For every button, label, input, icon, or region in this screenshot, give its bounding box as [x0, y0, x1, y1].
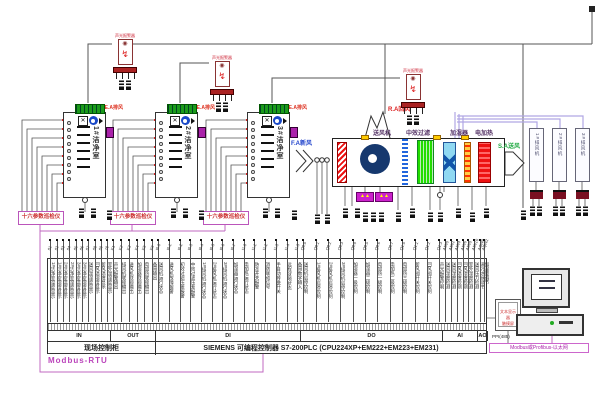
rack-bars [77, 126, 90, 174]
sensor-box [198, 127, 206, 138]
damper-grid-section [402, 139, 408, 185]
lightning-icon: ↯ [407, 83, 420, 95]
terminal-stack [315, 214, 320, 224]
alarm-body: ◉↯ [406, 74, 421, 100]
pc-monitor-stand [536, 308, 558, 313]
wire-signal-label: 手自动转换开关 [277, 262, 282, 320]
alarm-pins [213, 95, 232, 101]
modbus-rtu-label: Modbus-RTU [48, 356, 108, 365]
terminal-stack [410, 208, 415, 218]
supply-fan-label: 送风机 [373, 128, 391, 137]
wire-signal-label: 2#洁净室温度显示 [64, 262, 69, 320]
wire-signal-label: 声光报警输出 [114, 262, 119, 320]
lightning-icon: ↯ [119, 48, 132, 60]
terminal-stack [470, 212, 475, 222]
terminal-stack [521, 210, 526, 220]
rack-bars [169, 126, 182, 174]
lightning-icon: ↯ [216, 70, 229, 82]
pc-screen [531, 274, 562, 300]
terminal-stack [379, 212, 384, 222]
wire-signal-label: 消防联动信号 [266, 262, 271, 320]
heater-label: 电加热 [475, 128, 493, 137]
io-section-AI: AI [443, 331, 478, 341]
humidifier-section [464, 142, 471, 183]
terminal-stack [199, 210, 204, 220]
duct-fan-unit: 1#排风机 [529, 128, 544, 182]
wire-signal-label: 送风机联锁输出 [130, 262, 135, 320]
bell-icon: ◉ [216, 62, 229, 70]
param-monitor: 十六参数巡检仪 [110, 211, 156, 225]
param-monitor: 十六参数巡检仪 [18, 211, 64, 225]
wire-signal-label: 加湿量调节 [485, 262, 490, 320]
wire-signal-label: 2#洁净室湿度显示 [70, 262, 75, 320]
terminal-stack [343, 208, 348, 218]
wire-signal-label: 防冻开关报警 [255, 262, 260, 320]
wire-signal-label: 新风阀开关控制 [416, 262, 421, 320]
terminal-stack [530, 206, 535, 216]
duct-fan-label: 2#排风机 [557, 133, 563, 157]
rack-bars [261, 126, 274, 174]
bell-icon: ◉ [119, 40, 132, 48]
hmi-line2: 触摸屏 [502, 321, 514, 326]
cleanroom-label: 1#洁净室 [90, 126, 100, 160]
io-section-IN: IN [48, 331, 111, 341]
terminal-stack [107, 210, 112, 220]
terminal-stack [275, 208, 280, 218]
wire-signal-label: 回风阀开关控制 [428, 262, 433, 320]
alarm-unit: 声光报警器◉↯ [112, 33, 138, 90]
wire-signal-label: 送风机运行状态 [159, 262, 164, 320]
damper-actuator-icon [361, 135, 369, 140]
terminal-stack [583, 206, 588, 216]
floppy-slot [559, 321, 573, 324]
wire-signal-label: 加湿器联锁输出 [138, 262, 143, 320]
terminal-stack [407, 115, 412, 125]
medium-filter-label: 中效过滤 [406, 128, 430, 137]
fan-connector-cap [576, 190, 589, 199]
terminal-stack [126, 80, 131, 90]
terminal-stack [456, 208, 461, 218]
wire-signal-label: 新风温度显示 [102, 262, 107, 320]
io-section-AO: AO [478, 331, 488, 341]
alarm-pins [116, 73, 135, 79]
terminal-stack [553, 206, 558, 216]
pc-case [516, 314, 584, 336]
io-section-DI: DI [156, 331, 301, 341]
wire-signal-label: 初效过滤压差报警 [181, 262, 186, 320]
cleanroom-unit: E.A排风✕2#洁净室 [155, 112, 198, 198]
terminal-stack [79, 208, 84, 218]
hmi-line1: 文本显示器 [500, 309, 516, 320]
fresh-air-label: F.A新风 [291, 138, 312, 147]
wire-signal-label: 送风机故障报警 [170, 262, 175, 320]
field-cabinet-label: 现场控制柜 [48, 341, 156, 355]
terminal-stack [119, 80, 124, 90]
fan-connector-cap [530, 190, 543, 199]
pc-monitor [522, 268, 570, 308]
terminal-stack [216, 102, 221, 112]
wire-signal-label: 电加热联锁输出 [145, 262, 150, 320]
wire-signal-label: 送风温湿度显示 [89, 262, 94, 320]
terminal-stack [484, 208, 489, 218]
terminal-stack [263, 208, 268, 218]
humidifier-pump: ▲▲ [356, 192, 374, 202]
exhaust-fan-icon: ✕ [170, 115, 195, 126]
wire-signal-label: 加湿器二级控制 [366, 262, 371, 320]
alarm-label: 声光报警器 [205, 55, 239, 61]
duct-fan-label: 3#排风机 [580, 133, 586, 157]
terminal-block-green [167, 104, 197, 114]
duct-fan-unit: 2#排风机 [552, 128, 567, 182]
ppi-bus-label: PPI(485) [492, 334, 510, 339]
wire-signal-label: 电加热一级控制 [378, 262, 383, 320]
wire-signal-label: 电加热三级控制 [403, 262, 408, 320]
cleanroom-unit: E.A排风✕3#洁净室 [247, 112, 290, 198]
sensor-points [67, 121, 71, 184]
sensor-box [290, 127, 298, 138]
terminal-stack [414, 115, 419, 125]
terminal-stack [223, 102, 228, 112]
alarm-unit: 声光报警器◉↯ [400, 68, 426, 125]
medium-filter-section [417, 140, 434, 184]
terminal-stack [438, 212, 443, 222]
humidifier-label: 加湿器 [450, 128, 468, 137]
terminal-stack [91, 208, 96, 218]
wire-signal-label: 电加热二级控制 [391, 262, 396, 320]
alarm-pins [404, 108, 423, 114]
terminal-stack [292, 210, 297, 220]
terminal-number-strip [48, 323, 486, 331]
diagram-canvas: ▲▲ ▲▲ R.A回风 F.A新风 S.A送风 送风机 中效过滤 加湿器 电加热… [0, 0, 600, 400]
io-section-DO: DO [301, 331, 443, 341]
wire-signal-label: 加湿器一级控制 [354, 262, 359, 320]
fan-connector-cap [553, 190, 566, 199]
terminal-stack [560, 206, 565, 216]
plc-label: SIEMENS 可编程控制器 S7-200PLC (CPU224XP+EM222… [156, 341, 486, 355]
damper-actuator-icon [433, 135, 441, 140]
wire-signal-label: 远程/就地状态 [288, 262, 293, 320]
cleanroom-label: 2#洁净室 [182, 126, 192, 160]
wire-signal-label: 送风机启停控制 [304, 262, 309, 320]
wire-signal-label: 1#排风机启停控制 [317, 262, 322, 320]
exhaust-air-label: E.A排风 [289, 104, 307, 111]
wire-signal-label: 排风机联锁输出 [122, 262, 127, 320]
io-section-OUT: OUT [111, 331, 156, 341]
exhaust-air-label: E.A排风 [197, 104, 215, 111]
coarse-filter-section [337, 142, 347, 183]
alarm-label: 声光报警器 [108, 33, 142, 39]
supply-fan-impeller [360, 144, 390, 174]
wire-signal-label: 3#排风机运行状态 [223, 262, 228, 320]
wire-signal-label: 2#排风机启停控制 [329, 262, 334, 320]
fieldbus-label: Modbus或Profibus-以太网 [489, 343, 589, 353]
cleanroom-unit: E.A排风✕1#洁净室 [63, 112, 106, 198]
terminal-stack [428, 212, 433, 222]
wire-signal-label: 加湿器运行状态 [234, 262, 239, 320]
terminal-stack [355, 208, 360, 218]
terminal-stack [537, 206, 542, 216]
cleanroom-label: 3#洁净室 [274, 126, 284, 160]
exhaust-air-label: E.A排风 [105, 104, 123, 111]
terminal-stack [371, 212, 376, 222]
wire-signal-label: 3#排风机启停控制 [341, 262, 346, 320]
humidifier-pump: ▲▲ [375, 192, 393, 202]
cooling-coil-section [443, 142, 456, 183]
terminal-stack [183, 208, 188, 218]
electric-heater-section [478, 142, 491, 183]
terminal-stack [576, 206, 581, 216]
wire-signal-label: 电加热运行状态 [245, 262, 250, 320]
wire-signal-label: 3#洁净室湿度显示 [83, 262, 88, 320]
wire-signal-label: 中效过滤压差报警 [191, 262, 196, 320]
wire-signal-label: 2#排风机运行状态 [213, 262, 218, 320]
ahu-unit [332, 138, 505, 187]
duct-fan-label: 1#排风机 [534, 133, 540, 157]
power-led [550, 321, 554, 325]
terminal-stack [325, 214, 330, 224]
sensor-box [106, 127, 114, 138]
terminal-stack [363, 212, 368, 222]
param-monitor: 十六参数巡检仪 [203, 211, 249, 225]
alarm-body: ◉↯ [118, 39, 133, 65]
duct-fan-unit: 3#排风机 [575, 128, 590, 182]
alarm-body: ◉↯ [215, 61, 230, 87]
terminal-block-green [75, 104, 105, 114]
terminal-stack [171, 208, 176, 218]
terminal-block-green [259, 104, 289, 114]
alarm-label: 声光报警器 [396, 68, 430, 74]
exhaust-fan-icon: ✕ [262, 115, 287, 126]
wire-signal-label: 1#洁净室温度显示 [51, 262, 56, 320]
exhaust-fan-icon: ✕ [78, 115, 103, 126]
sensor-points [159, 121, 163, 184]
wire-signal-label: 1#排风机运行状态 [202, 262, 207, 320]
sensor-points [251, 121, 255, 184]
bell-icon: ◉ [407, 75, 420, 83]
supply-air-label: S.A送风 [498, 141, 520, 150]
terminal-stack [396, 212, 401, 222]
junction-dot [589, 6, 595, 12]
